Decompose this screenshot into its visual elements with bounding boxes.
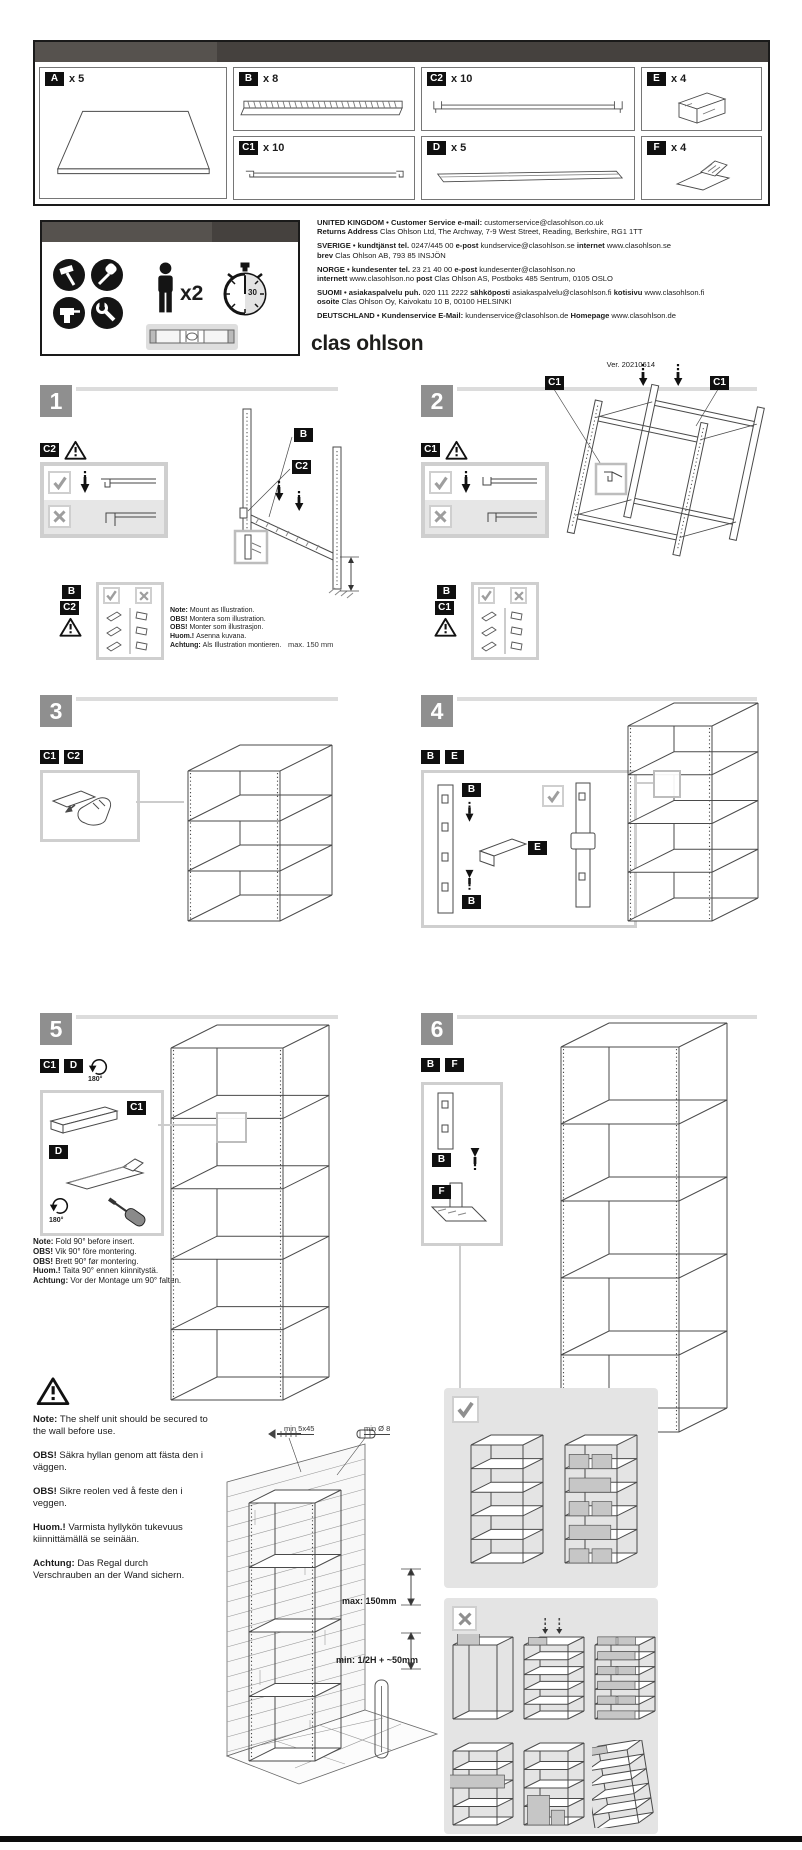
brand-logo: clas ohlson bbox=[311, 332, 423, 356]
part-cell-d: Dx 5 bbox=[421, 136, 635, 200]
part-qty-d: x 5 bbox=[451, 142, 466, 154]
contact-uk-line2: Returns Address Clas Ohlson Ltd, The Arc… bbox=[317, 227, 772, 236]
tools-box: x2 30 bbox=[40, 220, 300, 356]
cross-icon bbox=[48, 505, 71, 528]
correct-usage-empty-shelf bbox=[468, 1432, 546, 1566]
step-4-joint-callout-box bbox=[653, 770, 681, 798]
step-2-callout-c1-badge-left: C1 bbox=[545, 376, 564, 390]
step-6-part-f-badge: F bbox=[445, 1058, 464, 1072]
correct-orientation-row bbox=[425, 466, 545, 500]
part-qty-c1: x 10 bbox=[263, 142, 284, 154]
step-2-callout-c1-badge-right: C1 bbox=[710, 376, 729, 390]
parts-list: Ax 5 Bx 8 C1x 10 C2x 10 bbox=[33, 40, 770, 206]
step-6-foot-detail-box: B F bbox=[421, 1082, 503, 1246]
step-6-part-row: B F bbox=[421, 1058, 464, 1072]
step-1-hook-detail-box bbox=[96, 582, 164, 660]
incorrect-usage-4 bbox=[450, 1740, 516, 1828]
part-cell-b: Bx 8 bbox=[233, 67, 415, 131]
step-1-callout-b-badge: B bbox=[294, 428, 313, 442]
step-2-detail-b-badge: B bbox=[437, 585, 456, 599]
step-4-part-b-badge: B bbox=[421, 750, 440, 764]
part-cell-e: Ex 4 bbox=[641, 67, 762, 131]
shelf-panel-icon bbox=[40, 86, 226, 198]
warning-icon bbox=[36, 1376, 70, 1406]
spirit-level-icon bbox=[146, 324, 238, 350]
step-3-rule bbox=[76, 697, 338, 701]
step-6-rule bbox=[457, 1015, 757, 1019]
arrow-down-icon bbox=[461, 470, 471, 494]
step-5-part-c1-badge: C1 bbox=[40, 1059, 59, 1073]
step-1-rule bbox=[76, 387, 338, 391]
part-badge-d: D bbox=[427, 141, 446, 155]
d-plate-illustration bbox=[61, 1155, 151, 1195]
step-1-dimension-label: max. 150 mm bbox=[288, 640, 333, 649]
step-5-number: 5 bbox=[40, 1013, 72, 1045]
screwdriver-icon bbox=[90, 258, 124, 292]
clip-correct-glyph bbox=[98, 473, 158, 493]
beam-icon bbox=[234, 86, 414, 130]
parts-header-bar bbox=[35, 42, 768, 62]
check-icon bbox=[452, 1396, 479, 1423]
step-1-callout-c2-badge: C2 bbox=[292, 460, 311, 474]
customer-service-block: UNITED KINGDOM • Customer Service e-mail… bbox=[317, 218, 772, 321]
check-icon bbox=[103, 587, 120, 604]
incorrect-usage-3 bbox=[592, 1634, 658, 1722]
step-5-detail-rotate-label: 180° bbox=[49, 1217, 63, 1224]
step-3-hand-detail-box bbox=[40, 770, 140, 842]
person-count-label: x2 bbox=[180, 282, 203, 306]
step-5-rotate-label: 180° bbox=[88, 1076, 102, 1083]
step-2-hook-detail-box bbox=[471, 582, 539, 660]
step-1-part-row: C2 bbox=[40, 440, 87, 460]
step-4-detail-b-top-badge: B bbox=[462, 783, 481, 797]
warning-icon bbox=[445, 440, 468, 460]
step-4-detail-b-bottom-badge: B bbox=[462, 895, 481, 909]
step-6-number: 6 bbox=[421, 1013, 453, 1045]
step-2-part-row: C1 bbox=[421, 440, 468, 460]
step-6-shelf-illustration bbox=[558, 1020, 730, 1435]
step-5-leader-line bbox=[158, 1124, 218, 1126]
cross-icon bbox=[135, 587, 152, 604]
part-badge-b: B bbox=[239, 72, 258, 86]
step-2-part-c1-badge: C1 bbox=[421, 443, 440, 457]
arrow-down-icon bbox=[80, 470, 90, 494]
step-6-detail-f-badge: F bbox=[432, 1185, 451, 1199]
part-badge-a: A bbox=[45, 72, 64, 86]
warning-icon bbox=[59, 617, 82, 637]
part-qty-e: x 4 bbox=[671, 73, 686, 85]
cross-icon bbox=[510, 587, 527, 604]
incorrect-usage-1 bbox=[450, 1634, 516, 1722]
part-qty-c2: x 10 bbox=[451, 73, 472, 85]
contact-de-line1: DEUTSCHLAND • Kundenservice E-Mail: kund… bbox=[317, 311, 772, 320]
hook-comparison-glyphs bbox=[477, 607, 533, 655]
correct-usage-panel bbox=[444, 1388, 658, 1588]
arrow-down-icon bbox=[465, 801, 474, 823]
screwdriver-tool-icon bbox=[103, 1195, 153, 1230]
incorrect-orientation-row bbox=[425, 500, 545, 534]
part-cell-f: Fx 4 bbox=[641, 136, 762, 200]
hand-insert-clip-illustration bbox=[47, 777, 133, 835]
step-1-detail-c2-badge: C2 bbox=[60, 601, 79, 615]
part-cell-c1: C1x 10 bbox=[233, 136, 415, 200]
part-qty-b: x 8 bbox=[263, 73, 278, 85]
tools-header-bar bbox=[42, 222, 298, 242]
warning-icon bbox=[434, 617, 457, 637]
step-3-part-c2-badge: C2 bbox=[64, 750, 83, 764]
check-icon bbox=[478, 587, 495, 604]
step-3-shelf-illustration bbox=[185, 742, 335, 924]
step-3-part-row: C1 C2 bbox=[40, 750, 83, 764]
clip-incorrect-glyph bbox=[479, 506, 539, 526]
part-badge-c1: C1 bbox=[239, 141, 258, 155]
step-1-orientation-box bbox=[40, 462, 168, 538]
long-bracket-c1-icon bbox=[234, 155, 414, 199]
contact-fi-line1: SUOMI • asiakaspalvelu puh. 020 111 2222… bbox=[317, 288, 772, 297]
step-1-number: 1 bbox=[40, 385, 72, 417]
step-5-detail-c1-badge: C1 bbox=[127, 1101, 146, 1115]
part-badge-f: F bbox=[647, 141, 666, 155]
instruction-sheet: Ax 5 Bx 8 C1x 10 C2x 10 bbox=[0, 0, 802, 1850]
correct-usage-loaded-shelf bbox=[562, 1432, 640, 1566]
wall-shelf-illustration bbox=[246, 1487, 344, 1764]
stopwatch-minutes-label: 30 bbox=[248, 288, 257, 297]
part-qty-f: x 4 bbox=[671, 142, 686, 154]
drill-icon bbox=[52, 296, 86, 330]
part-badge-e: E bbox=[647, 72, 666, 86]
wall-anchoring-notes: Note: The shelf unit should be secured t… bbox=[33, 1414, 209, 1594]
step-2-number: 2 bbox=[421, 385, 453, 417]
c1-bracket-illustration bbox=[47, 1099, 123, 1139]
cross-icon bbox=[452, 1606, 477, 1631]
hammer-icon bbox=[52, 258, 86, 292]
step-4-shelf-illustration bbox=[625, 700, 761, 924]
step-2-orientation-box bbox=[421, 462, 549, 538]
step-4-detail-e-badge: E bbox=[528, 841, 547, 855]
stopwatch-icon bbox=[220, 262, 270, 318]
check-icon bbox=[429, 471, 452, 494]
rotate-180-icon bbox=[88, 1058, 110, 1075]
step-5-bracket-callout-box bbox=[216, 1112, 247, 1143]
incorrect-usage-panel bbox=[444, 1598, 658, 1834]
contact-se-line1: SVERIGE • kundtjänst tel. 0247/445 00 e-… bbox=[317, 241, 772, 250]
incorrect-usage-6 bbox=[592, 1740, 658, 1828]
step-1-detail-b-badge: B bbox=[62, 585, 81, 599]
incorrect-usage-2 bbox=[521, 1616, 587, 1722]
check-icon bbox=[542, 785, 564, 807]
step-4-number: 4 bbox=[421, 695, 453, 727]
step-4-joint-detail-box: B E B bbox=[421, 770, 637, 928]
contact-no-line2: internett www.clasohlson.no post Clas Oh… bbox=[317, 274, 772, 283]
arrow-up-icon bbox=[465, 869, 474, 891]
part-cell-c2: C2x 10 bbox=[421, 67, 635, 131]
step-3-part-c1-badge: C1 bbox=[40, 750, 59, 764]
cross-icon bbox=[429, 505, 452, 528]
rotate-180-icon bbox=[49, 1197, 71, 1214]
step-5-shelf-illustration bbox=[168, 1022, 332, 1403]
contact-se-line2: brev Clas Ohlson AB, 793 85 INSJÖN bbox=[317, 251, 772, 260]
check-icon bbox=[48, 471, 71, 494]
step-2-illustration bbox=[538, 360, 773, 588]
wall-plug-label: min Ø 8 bbox=[364, 1424, 390, 1435]
wall-screw-label: min 5x45 bbox=[284, 1424, 314, 1435]
foot-bracket-icon bbox=[642, 155, 761, 199]
incorrect-usage-5 bbox=[521, 1740, 587, 1828]
step-2-detail-c1-badge: C1 bbox=[435, 601, 454, 615]
contact-fi-line2: osoite Clas Ohlson Oy, Kaivokatu 10 B, 0… bbox=[317, 297, 772, 306]
wall-min-dimension-label: min: 1/2H + ~50mm bbox=[336, 1655, 418, 1665]
step-5-bracket-detail-box: C1 D 180° bbox=[40, 1090, 164, 1236]
footer-rule bbox=[0, 1836, 802, 1842]
contact-uk-line1: UNITED KINGDOM • Customer Service e-mail… bbox=[317, 218, 772, 227]
step-5-part-d-badge: D bbox=[64, 1059, 83, 1073]
step-1-part-c2-badge: C2 bbox=[40, 443, 59, 457]
step-4-part-row: B E bbox=[421, 750, 464, 764]
step-5-rule bbox=[76, 1015, 338, 1019]
clip-correct-glyph bbox=[479, 473, 539, 493]
wall-max-dimension-label: max: 150mm bbox=[342, 1596, 397, 1606]
correct-orientation-row bbox=[44, 466, 164, 500]
hook-comparison-glyphs bbox=[102, 607, 158, 655]
incorrect-orientation-row bbox=[44, 500, 164, 534]
step-6-part-b-badge: B bbox=[421, 1058, 440, 1072]
person-icon bbox=[152, 262, 179, 314]
part-badge-c2: C2 bbox=[427, 72, 446, 86]
flat-plate-icon bbox=[422, 155, 634, 199]
clip-incorrect-glyph bbox=[98, 506, 158, 526]
warning-icon bbox=[64, 440, 87, 460]
part-cell-a: Ax 5 bbox=[39, 67, 227, 199]
step-3-number: 3 bbox=[40, 695, 72, 727]
corner-bracket-icon bbox=[642, 86, 761, 130]
arrow-up-icon bbox=[470, 1147, 480, 1171]
wrench-icon bbox=[90, 296, 124, 330]
part-qty-a: x 5 bbox=[69, 73, 84, 85]
step-3-leader-line bbox=[136, 801, 184, 803]
step-6-detail-b-badge: B bbox=[432, 1153, 451, 1167]
step-5-part-row: C1 D bbox=[40, 1058, 110, 1075]
contact-no-line1: NORGE • kundesenter tel. 23 21 40 00 e-p… bbox=[317, 265, 772, 274]
step-4-part-e-badge: E bbox=[445, 750, 464, 764]
long-bracket-c2-icon bbox=[422, 86, 634, 130]
